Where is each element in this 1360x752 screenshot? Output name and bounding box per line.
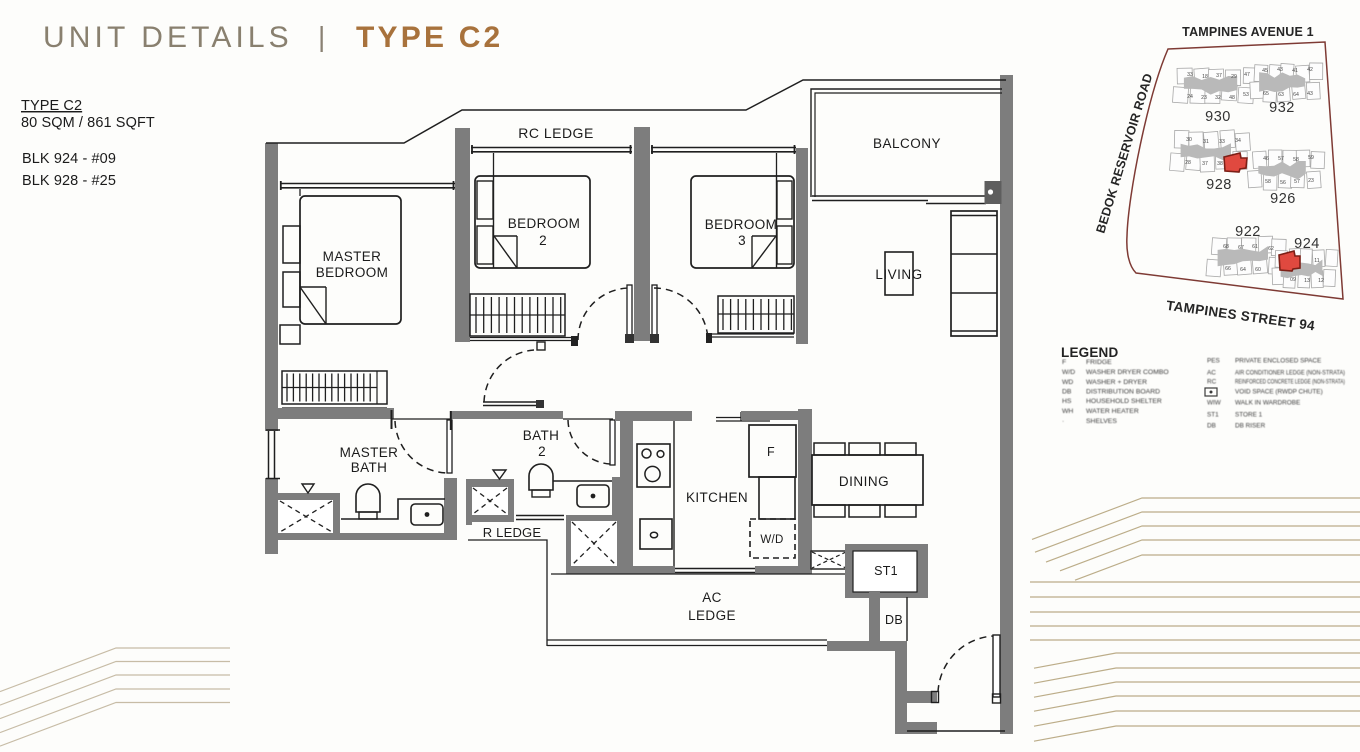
svg-text:F: F: [767, 445, 775, 459]
svg-text:59: 59: [1308, 155, 1314, 161]
svg-text:09: 09: [1290, 277, 1296, 283]
svg-text:R LEDGE: R LEDGE: [483, 525, 542, 540]
svg-text:BATH: BATH: [351, 460, 388, 475]
svg-text:·: ·: [1062, 418, 1064, 425]
svg-text:62: 62: [1268, 246, 1274, 252]
svg-text:58: 58: [1265, 179, 1271, 185]
svg-text:VOID SPACE (RWDP CHUTE): VOID SPACE (RWDP CHUTE): [1235, 389, 1323, 396]
svg-text:WALK IN WARDROBE: WALK IN WARDROBE: [1235, 400, 1300, 407]
svg-text:3: 3: [738, 233, 746, 248]
svg-text:68: 68: [1223, 244, 1229, 250]
svg-text:43: 43: [1307, 91, 1313, 97]
svg-text:WASHER DRYER COMBO: WASHER DRYER COMBO: [1086, 369, 1169, 376]
svg-text:TYPE C2: TYPE C2: [21, 98, 82, 114]
svg-text:43: 43: [1277, 67, 1283, 73]
svg-text:28: 28: [1185, 160, 1191, 166]
svg-text:60: 60: [1255, 267, 1261, 273]
svg-text:42: 42: [1307, 67, 1313, 73]
svg-text:HS: HS: [1062, 398, 1072, 405]
svg-text:PES: PES: [1207, 358, 1220, 365]
svg-text:30: 30: [1186, 137, 1192, 143]
svg-text:FRIDGE: FRIDGE: [1086, 359, 1112, 366]
svg-text:BALCONY: BALCONY: [873, 136, 941, 151]
svg-text:MASTER: MASTER: [323, 249, 382, 264]
svg-text:58: 58: [1293, 157, 1299, 163]
svg-text:18: 18: [1202, 74, 1208, 80]
svg-text:41: 41: [1292, 68, 1298, 74]
svg-text:AIR CONDITIONER LEDGE (NON-STR: AIR CONDITIONER LEDGE (NON-STRATA): [1235, 370, 1345, 377]
svg-text:31: 31: [1203, 139, 1209, 145]
svg-text:45: 45: [1262, 68, 1268, 74]
svg-text:61: 61: [1252, 244, 1258, 250]
svg-text:KITCHEN: KITCHEN: [686, 490, 748, 505]
svg-text:12: 12: [1318, 278, 1324, 284]
svg-text:DISTRIBUTION BOARD: DISTRIBUTION BOARD: [1086, 389, 1160, 396]
svg-text:BEDROOM: BEDROOM: [705, 217, 778, 232]
svg-text:46: 46: [1263, 156, 1269, 162]
svg-text:PRIVATE ENCLOSED SPACE: PRIVATE ENCLOSED SPACE: [1235, 358, 1321, 365]
svg-text:80 SQM / 861 SQFT: 80 SQM / 861 SQFT: [21, 115, 155, 131]
svg-text:63: 63: [1278, 92, 1284, 98]
svg-text:DB: DB: [885, 613, 903, 627]
svg-text:24: 24: [1187, 94, 1193, 100]
svg-text:DB RISER: DB RISER: [1235, 423, 1266, 430]
svg-text:WH: WH: [1062, 408, 1073, 415]
svg-text:BEDROOM: BEDROOM: [508, 216, 581, 231]
svg-text:BATH: BATH: [523, 428, 560, 443]
svg-text:LIVING: LIVING: [875, 267, 922, 282]
svg-text:RC LEDGE: RC LEDGE: [518, 125, 594, 141]
svg-text:928: 928: [1206, 177, 1232, 193]
svg-text:W/D: W/D: [1062, 369, 1075, 376]
svg-text:53: 53: [1243, 92, 1249, 98]
svg-text:64: 64: [1240, 267, 1246, 273]
svg-text:DINING: DINING: [839, 474, 889, 489]
svg-text:HOUSEHOLD SHELTER: HOUSEHOLD SHELTER: [1086, 398, 1162, 405]
svg-text:66: 66: [1225, 266, 1231, 272]
svg-text:DB: DB: [1207, 423, 1216, 430]
svg-text:TYPE C2: TYPE C2: [356, 21, 503, 54]
svg-text:DB: DB: [1062, 389, 1072, 396]
svg-text:932: 932: [1269, 100, 1295, 116]
svg-text:ST1: ST1: [874, 564, 898, 578]
svg-text:|: |: [318, 21, 325, 52]
svg-text:LEDGE: LEDGE: [688, 608, 736, 623]
svg-text:BLK 928 - #25: BLK 928 - #25: [22, 173, 116, 189]
svg-text:BEDOK RESERVOIR ROAD: BEDOK RESERVOIR ROAD: [1093, 72, 1155, 235]
svg-text:RC: RC: [1207, 379, 1217, 386]
svg-text:UNIT DETAILS: UNIT DETAILS: [43, 21, 293, 54]
svg-text:W/D: W/D: [760, 534, 783, 546]
svg-text:64: 64: [1293, 92, 1299, 98]
svg-text:65: 65: [1263, 91, 1269, 97]
svg-text:34: 34: [1235, 138, 1241, 144]
svg-text:23: 23: [1308, 178, 1314, 184]
svg-text:38: 38: [1217, 161, 1223, 167]
svg-text:MASTER: MASTER: [340, 445, 399, 460]
svg-text:930: 930: [1205, 109, 1231, 125]
svg-text:WD: WD: [1062, 379, 1073, 386]
svg-text:WIW: WIW: [1207, 400, 1222, 407]
svg-text:2: 2: [538, 444, 546, 459]
svg-text:LEGEND: LEGEND: [1061, 345, 1119, 360]
svg-text:48: 48: [1229, 95, 1235, 101]
svg-text:STORE 1: STORE 1: [1235, 412, 1263, 419]
svg-text:AC: AC: [1207, 370, 1216, 377]
svg-text:33: 33: [1187, 72, 1193, 78]
svg-text:32: 32: [1215, 95, 1221, 101]
svg-text:37: 37: [1216, 73, 1222, 79]
svg-text:WASHER + DRYER: WASHER + DRYER: [1086, 379, 1147, 386]
svg-text:AC: AC: [702, 590, 722, 605]
svg-text:33: 33: [1219, 139, 1225, 145]
svg-text:926: 926: [1270, 191, 1296, 207]
svg-text:57: 57: [1278, 156, 1284, 162]
svg-text:23: 23: [1201, 95, 1207, 101]
svg-text:ST1: ST1: [1207, 412, 1219, 419]
svg-text:WATER HEATER: WATER HEATER: [1086, 408, 1139, 415]
svg-text:57: 57: [1294, 179, 1300, 185]
svg-text:47: 47: [1244, 72, 1250, 78]
svg-text:BEDROOM: BEDROOM: [316, 265, 389, 280]
svg-text:2: 2: [539, 233, 547, 248]
svg-text:BLK 924 - #09: BLK 924 - #09: [22, 151, 116, 167]
svg-text:TAMPINES STREET 94: TAMPINES STREET 94: [1165, 298, 1316, 334]
svg-text:56: 56: [1280, 180, 1286, 186]
svg-text:11: 11: [1314, 258, 1319, 264]
svg-text:SHELVES: SHELVES: [1086, 418, 1117, 425]
svg-text:TAMPINES AVENUE 1: TAMPINES AVENUE 1: [1182, 25, 1314, 39]
svg-text:37: 37: [1202, 161, 1208, 167]
svg-text:F: F: [1062, 359, 1066, 366]
svg-text:29: 29: [1231, 74, 1237, 80]
svg-text:67: 67: [1238, 245, 1244, 251]
svg-text:REINFORCED CONCRETE LEDGE (NON: REINFORCED CONCRETE LEDGE (NON-STRATA): [1235, 379, 1345, 386]
svg-text:13: 13: [1304, 278, 1310, 284]
